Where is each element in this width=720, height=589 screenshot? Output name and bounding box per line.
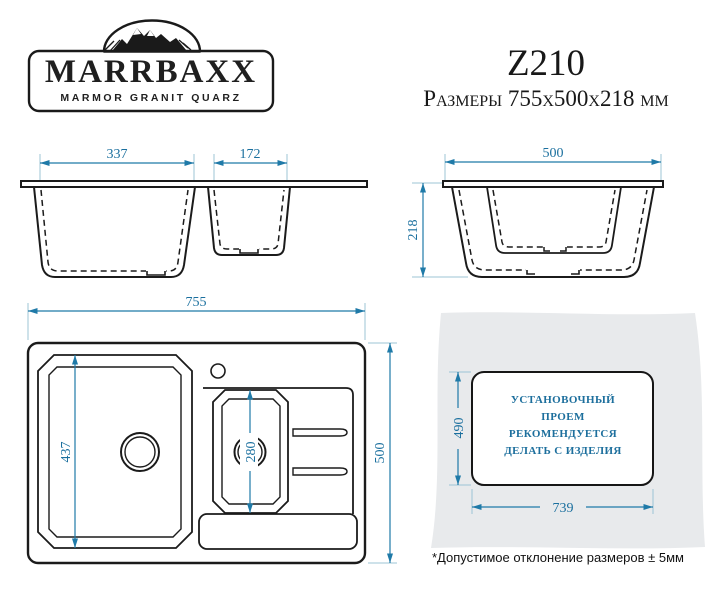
installation-note: УСТАНОВОЧНЫЙ ПРОЕМ РЕКОМЕНДУЕТСЯ ДЕЛАТЬ … (476, 392, 650, 460)
dim-side-width: 500 (543, 146, 564, 161)
drawing-sheet: 337 172 500 (0, 0, 720, 589)
installation-note-line: ДЕЛАТЬ С ИЗДЕЛИЯ (476, 443, 650, 460)
drainboard-groove (293, 429, 347, 436)
faucet-hole (211, 364, 225, 378)
installation-note-line: УСТАНОВОЧНЫЙ (476, 392, 650, 409)
dim-side-height: 218 (406, 220, 421, 241)
drain-main (121, 433, 159, 471)
dim-front-main-width: 337 (107, 147, 128, 162)
dim-top-small-bowl: 280 (244, 442, 259, 463)
top-view: 755 500 (28, 295, 397, 563)
model-subtitle: Размеры 755х500х218 мм (376, 86, 716, 112)
drainboard-groove (293, 468, 347, 475)
model-title: Z210 (396, 44, 696, 84)
installation-note-line: ПРОЕМ (476, 409, 650, 426)
dim-top-height: 500 (373, 443, 388, 464)
dim-cutout-height: 490 (452, 418, 467, 439)
dim-front-small-width: 172 (240, 147, 261, 162)
dim-top-main-bowl: 437 (59, 442, 74, 463)
tolerance-note: *Допустимое отклонение размеров ± 5мм (408, 550, 708, 565)
brand-name: MARRBAXX (30, 55, 272, 89)
front-view: 337 172 (21, 147, 367, 277)
side-view: 500 218 (406, 146, 663, 277)
brand-tagline: MARMOR GRANIT QUARZ (30, 92, 272, 104)
installation-note-line: РЕКОМЕНДУЕТСЯ (476, 426, 650, 443)
dim-cutout-width: 739 (553, 501, 574, 516)
dim-top-width: 755 (186, 295, 207, 310)
